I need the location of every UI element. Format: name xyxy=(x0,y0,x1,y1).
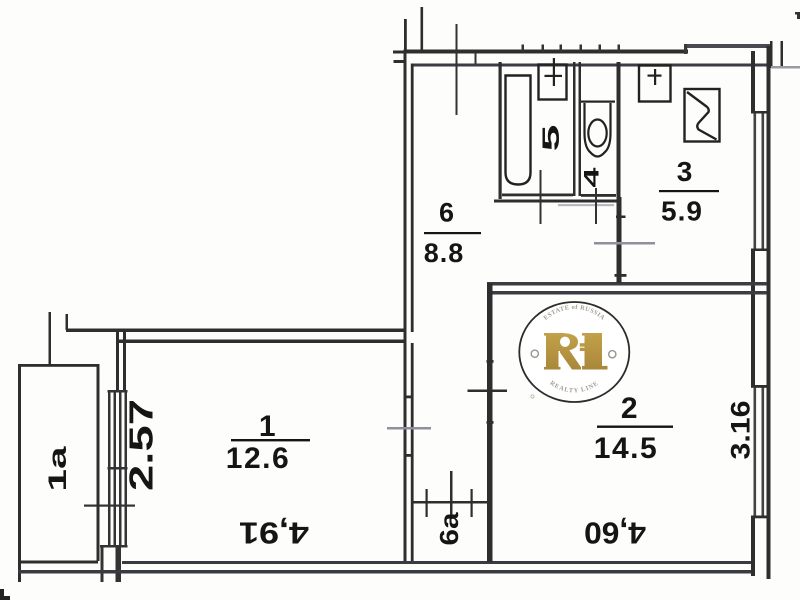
svg-text:2: 2 xyxy=(621,392,639,425)
svg-text:4,60: 4,60 xyxy=(584,516,646,551)
svg-text:3: 3 xyxy=(677,156,694,187)
svg-text:3.16: 3.16 xyxy=(726,401,756,460)
svg-text:5: 5 xyxy=(538,125,565,152)
svg-text:1a: 1a xyxy=(44,445,72,492)
svg-text:4,91: 4,91 xyxy=(239,516,309,551)
svg-text:5.9: 5.9 xyxy=(661,196,703,227)
svg-text:14.5: 14.5 xyxy=(594,432,658,465)
svg-text:6: 6 xyxy=(439,198,455,228)
svg-text:1: 1 xyxy=(259,410,277,443)
svg-text:4: 4 xyxy=(581,167,604,188)
svg-text:6a: 6a xyxy=(434,512,464,546)
svg-text:2.57: 2.57 xyxy=(123,399,160,491)
svg-text:12.6: 12.6 xyxy=(226,442,290,475)
svg-text:8.8: 8.8 xyxy=(424,238,465,268)
